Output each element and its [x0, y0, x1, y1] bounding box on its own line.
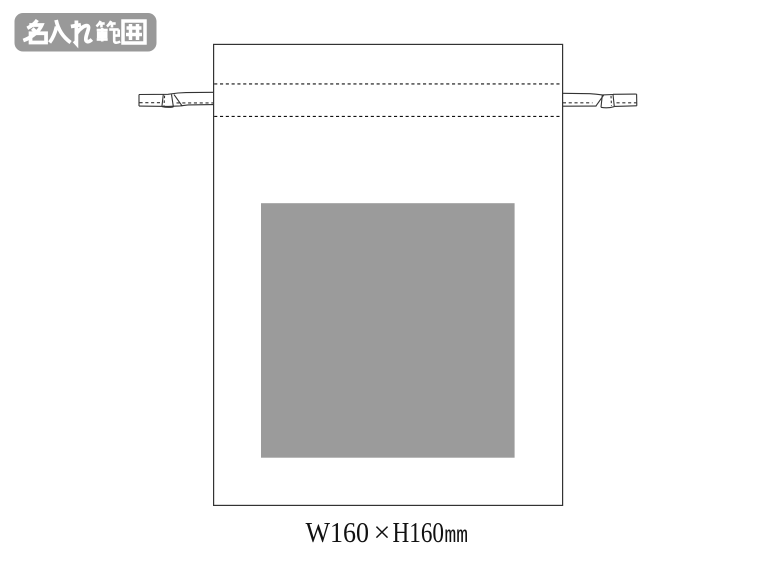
svg-text:W160: W160 — [306, 518, 370, 549]
svg-text:mm: mm — [445, 523, 469, 549]
svg-text:H160: H160 — [393, 518, 445, 549]
svg-text:×: × — [374, 516, 391, 549]
